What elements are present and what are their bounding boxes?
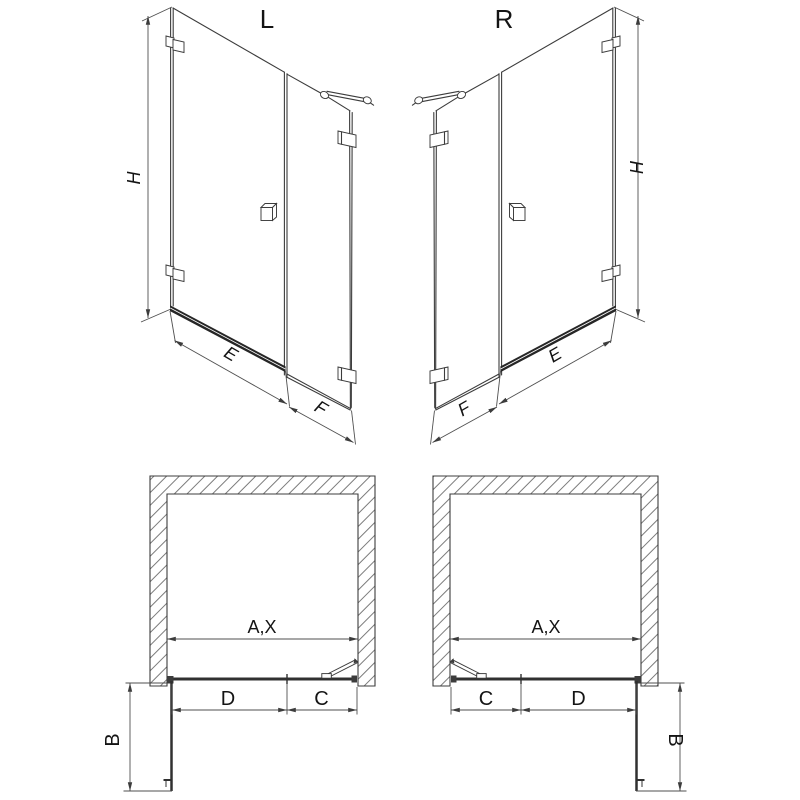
wall-profile <box>451 676 457 683</box>
dim-label-panel-right: F <box>454 397 474 420</box>
dim-label-panel-left: F <box>311 396 331 419</box>
dim-label-opening-left: A,X <box>247 617 276 637</box>
shower-enclosure-technical-drawing: L R H E F H E F <box>0 0 800 800</box>
support-bar-plan <box>450 658 487 678</box>
dimension-swing <box>124 683 173 791</box>
dim-label-swing-right: B <box>664 733 686 746</box>
variant-label-left: L <box>260 4 274 34</box>
plan-view-right: A,X C D B <box>433 476 687 791</box>
dim-label-door-plan-left: D <box>221 688 235 710</box>
support-bar-plan <box>322 658 359 678</box>
fixed-panel <box>287 74 374 410</box>
hinge-bottom <box>166 265 184 282</box>
plan-view-left: A,X D C B <box>102 476 375 791</box>
dim-label-door-left: E <box>221 342 242 366</box>
walls-hatched <box>433 476 658 686</box>
dim-label-height-right: H <box>626 161 646 175</box>
dim-label-swing-left: B <box>102 733 124 746</box>
front-view-left-geometry <box>141 7 374 445</box>
door-handle <box>261 204 277 221</box>
wall-bracket-top <box>338 131 356 148</box>
hinge-top <box>166 36 184 53</box>
dim-label-panel-plan-left: C <box>314 688 328 710</box>
technical-drawing-page: L R H E F H E F <box>0 0 800 800</box>
dim-label-door-plan-right: D <box>571 688 585 710</box>
variant-label-right: R <box>495 4 514 34</box>
dim-label-panel-plan-right: C <box>479 688 493 710</box>
door-open-plan <box>636 681 645 791</box>
dim-label-height-left: H <box>124 171 144 185</box>
door-panel <box>166 8 287 378</box>
support-bar <box>319 90 373 105</box>
door-open-plan <box>164 681 173 791</box>
wall-profile <box>352 676 358 683</box>
front-view-right-geometry <box>412 7 645 445</box>
dim-label-opening-right: A,X <box>531 617 560 637</box>
walls-hatched <box>150 476 375 686</box>
wall-bracket-bottom <box>338 367 356 384</box>
dim-label-door-right: E <box>545 343 566 367</box>
